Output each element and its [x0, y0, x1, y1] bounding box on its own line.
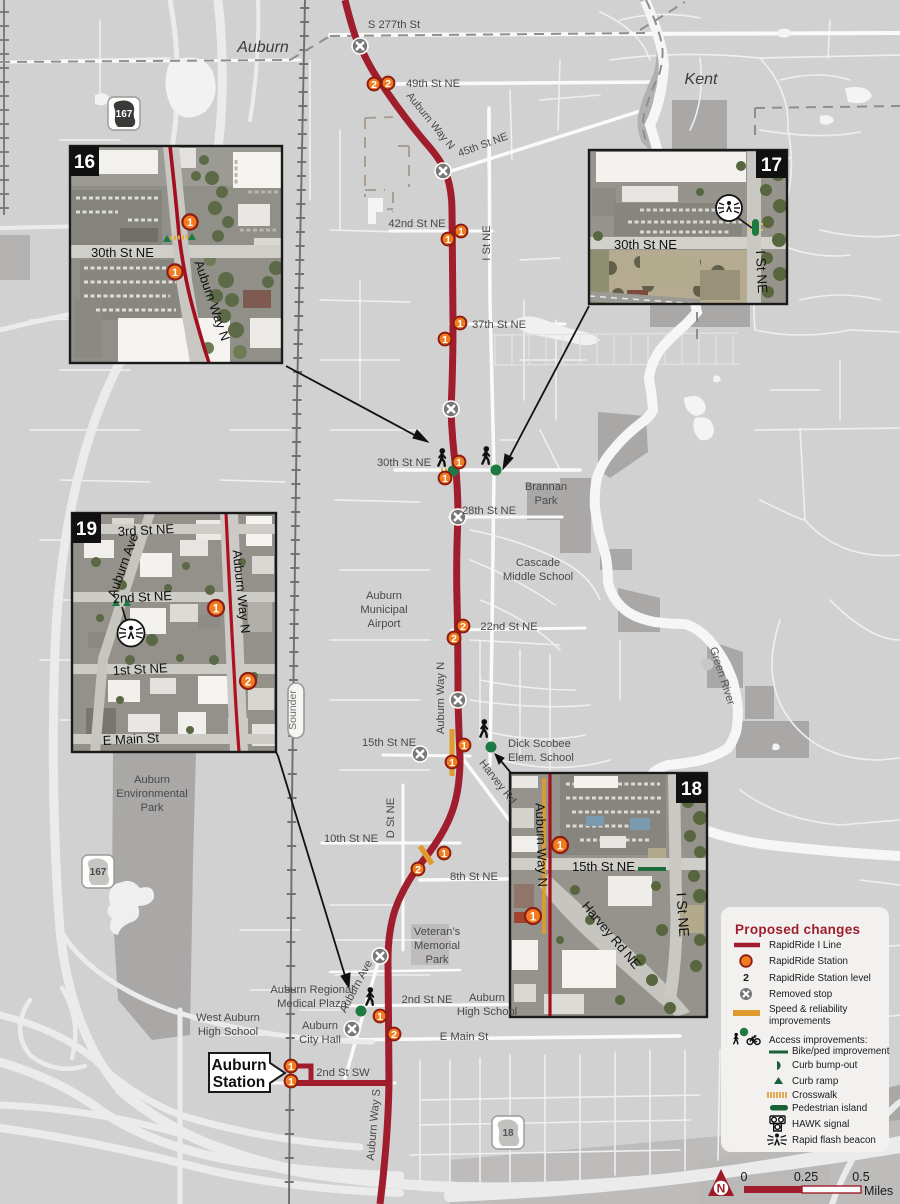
svg-text:2: 2: [391, 1029, 397, 1041]
svg-text:1: 1: [530, 912, 537, 924]
svg-text:167: 167: [116, 109, 133, 120]
svg-text:30th St NE: 30th St NE: [614, 237, 677, 252]
svg-text:1: 1: [213, 604, 220, 616]
svg-text:Access improvements:: Access improvements:: [769, 1035, 868, 1046]
svg-text:High School: High School: [457, 1006, 517, 1018]
svg-text:Speed & reliability: Speed & reliability: [769, 1004, 848, 1015]
svg-text:Elem. School: Elem. School: [508, 752, 574, 764]
svg-text:37th St NE: 37th St NE: [472, 319, 526, 331]
svg-text:Sounder: Sounder: [287, 690, 299, 730]
svg-text:1: 1: [557, 841, 564, 853]
svg-text:Auburn: Auburn: [134, 774, 170, 786]
svg-text:1: 1: [461, 740, 467, 752]
svg-text:E Main St: E Main St: [440, 1031, 489, 1043]
svg-text:2: 2: [415, 864, 421, 876]
svg-text:15th St NE: 15th St NE: [572, 859, 635, 874]
svg-text:19: 19: [76, 519, 97, 540]
svg-text:Airport: Airport: [368, 618, 402, 630]
svg-text:1: 1: [172, 267, 178, 279]
svg-text:Park: Park: [534, 495, 557, 507]
svg-text:Station: Station: [213, 1074, 266, 1091]
svg-text:Pedestrian island: Pedestrian island: [792, 1103, 867, 1114]
svg-text:RapidRide I Line: RapidRide I Line: [769, 940, 842, 951]
svg-text:D St NE: D St NE: [385, 798, 397, 838]
svg-text:0.25: 0.25: [794, 1170, 818, 1184]
svg-text:1: 1: [442, 334, 448, 346]
svg-text:Environmental: Environmental: [116, 788, 188, 800]
svg-text:Bike/ped improvement: Bike/ped improvement: [792, 1046, 890, 1057]
svg-text:West Auburn: West Auburn: [196, 1012, 260, 1024]
svg-text:2nd St SW: 2nd St SW: [316, 1067, 370, 1079]
svg-text:2: 2: [451, 633, 457, 645]
svg-text:N: N: [717, 1182, 726, 1196]
svg-text:28th St NE: 28th St NE: [462, 505, 516, 517]
svg-text:Auburn: Auburn: [236, 39, 289, 56]
svg-text:Cascade: Cascade: [516, 557, 560, 569]
svg-text:Municipal: Municipal: [360, 604, 407, 616]
svg-text:2: 2: [371, 79, 377, 91]
svg-text:2: 2: [385, 78, 391, 90]
svg-text:Auburn: Auburn: [211, 1057, 266, 1074]
svg-text:Park: Park: [140, 802, 163, 814]
svg-text:Removed stop: Removed stop: [769, 989, 833, 1000]
svg-text:1: 1: [288, 1061, 294, 1073]
svg-text:Dick Scobee: Dick Scobee: [508, 738, 571, 750]
svg-text:2: 2: [743, 972, 749, 984]
svg-text:Kent: Kent: [685, 71, 718, 88]
svg-text:30th St NE: 30th St NE: [91, 245, 154, 260]
svg-text:E Main St: E Main St: [102, 730, 159, 748]
svg-text:10th St NE: 10th St NE: [324, 833, 378, 845]
svg-text:Curb bump-out: Curb bump-out: [792, 1060, 858, 1071]
svg-text:Brannan: Brannan: [525, 481, 567, 493]
svg-text:18: 18: [502, 1128, 514, 1139]
svg-text:30th St NE: 30th St NE: [377, 457, 431, 469]
svg-text:Auburn: Auburn: [366, 590, 402, 602]
svg-text:Middle School: Middle School: [503, 571, 573, 583]
svg-text:1: 1: [445, 234, 451, 246]
svg-text:Auburn Way N: Auburn Way N: [533, 803, 551, 888]
svg-text:City Hall: City Hall: [299, 1034, 341, 1046]
svg-text:15th St NE: 15th St NE: [362, 737, 416, 749]
svg-text:0.5: 0.5: [852, 1170, 869, 1184]
svg-text:Auburn Way N: Auburn Way N: [435, 662, 447, 734]
svg-text:1: 1: [457, 318, 463, 330]
svg-text:Proposed changes: Proposed changes: [735, 922, 860, 937]
svg-text:improvements: improvements: [769, 1016, 831, 1027]
svg-text:Park: Park: [425, 954, 448, 966]
svg-text:Memorial: Memorial: [414, 940, 460, 952]
svg-text:Curb ramp: Curb ramp: [792, 1076, 839, 1087]
svg-text:1: 1: [187, 217, 193, 229]
svg-text:RapidRide Station level: RapidRide Station level: [769, 973, 871, 984]
svg-text:17: 17: [761, 155, 782, 176]
svg-text:2: 2: [460, 621, 466, 633]
svg-text:1: 1: [449, 757, 455, 769]
svg-text:1: 1: [458, 226, 464, 238]
svg-text:167: 167: [90, 867, 107, 878]
svg-text:18: 18: [681, 779, 702, 800]
svg-text:S 277th St: S 277th St: [368, 19, 421, 31]
svg-text:42nd St NE: 42nd St NE: [388, 218, 445, 230]
svg-text:High School: High School: [198, 1026, 258, 1038]
svg-text:Auburn: Auburn: [469, 992, 505, 1004]
svg-text:Miles: Miles: [864, 1184, 893, 1198]
svg-text:1: 1: [456, 457, 462, 469]
svg-text:1: 1: [377, 1011, 383, 1023]
svg-text:Auburn Regional: Auburn Regional: [270, 984, 353, 996]
svg-text:Veteran’s: Veteran’s: [414, 926, 461, 938]
svg-text:RapidRide Station: RapidRide Station: [769, 956, 848, 967]
svg-text:I St NE: I St NE: [481, 225, 493, 260]
svg-text:I St NE: I St NE: [753, 250, 770, 293]
svg-text:Rapid flash beacon: Rapid flash beacon: [792, 1135, 876, 1146]
svg-text:1: 1: [441, 848, 447, 860]
svg-text:2: 2: [245, 677, 251, 689]
svg-text:22nd St NE: 22nd St NE: [480, 621, 537, 633]
svg-text:0: 0: [741, 1170, 748, 1184]
svg-text:8th St NE: 8th St NE: [450, 871, 498, 883]
svg-text:16: 16: [74, 152, 95, 173]
svg-text:2nd St NE: 2nd St NE: [402, 994, 453, 1006]
svg-text:1: 1: [288, 1076, 294, 1088]
svg-text:49th St NE: 49th St NE: [406, 78, 460, 90]
svg-text:I St NE: I St NE: [673, 892, 692, 937]
svg-text:Auburn: Auburn: [302, 1020, 338, 1032]
svg-text:HAWK signal: HAWK signal: [792, 1119, 849, 1130]
svg-text:1: 1: [442, 473, 448, 485]
svg-text:Crosswalk: Crosswalk: [792, 1090, 837, 1101]
svg-text:1st St NE: 1st St NE: [112, 660, 168, 678]
